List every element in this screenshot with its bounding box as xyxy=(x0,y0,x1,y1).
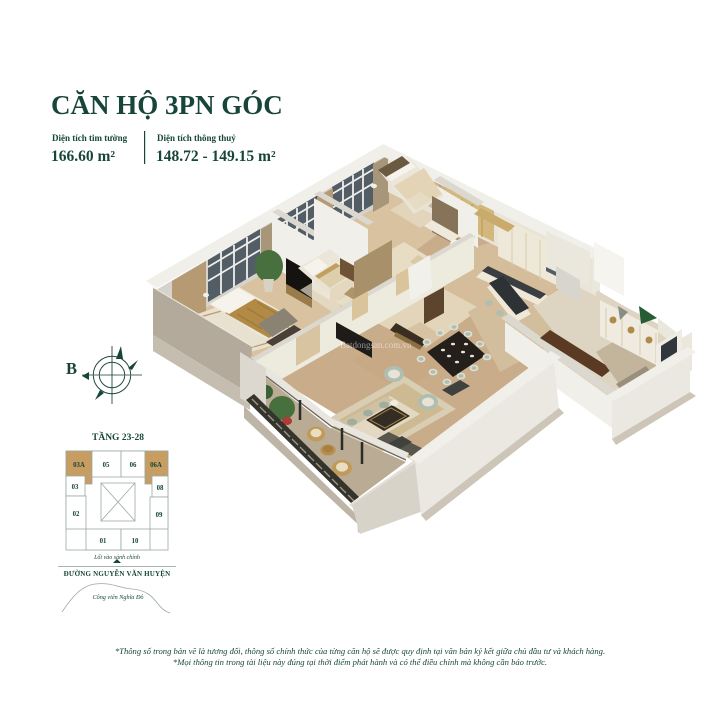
svg-text:06: 06 xyxy=(130,462,137,469)
svg-text:08: 08 xyxy=(157,485,164,492)
svg-text:10: 10 xyxy=(132,538,139,545)
svg-text:Diện tích tim tường: Diện tích tim tường xyxy=(52,133,128,143)
svg-text:*Thông số trong bản vẽ là tươn: *Thông số trong bản vẽ là tương đối, thô… xyxy=(115,646,605,656)
svg-text:B: B xyxy=(66,359,77,378)
svg-text:Công viên Nghĩa Đô: Công viên Nghĩa Đô xyxy=(92,594,143,601)
svg-text:166.60 m²: 166.60 m² xyxy=(51,148,115,165)
svg-text:03: 03 xyxy=(72,484,79,491)
svg-text:03A: 03A xyxy=(73,462,85,469)
svg-text:01: 01 xyxy=(100,538,107,545)
svg-text:ĐƯỜNG NGUYỄN VĂN HUYỆN: ĐƯỜNG NGUYỄN VĂN HUYỆN xyxy=(64,570,171,578)
svg-text:02: 02 xyxy=(73,511,80,518)
svg-text:Diện tích thông thuỷ: Diện tích thông thuỷ xyxy=(157,133,236,143)
svg-text:CĂN HỘ 3PN GÓC: CĂN HỘ 3PN GÓC xyxy=(51,90,283,120)
svg-text:09: 09 xyxy=(156,512,163,519)
svg-text:05: 05 xyxy=(103,462,110,469)
svg-text:*Mọi thông tin trong tài liệu: *Mọi thông tin trong tài liệu này đúng t… xyxy=(173,657,547,667)
svg-text:06A: 06A xyxy=(150,462,162,469)
svg-text:148.72 - 149.15 m²: 148.72 - 149.15 m² xyxy=(156,148,276,165)
svg-text:Batdongsan.com.vn: Batdongsan.com.vn xyxy=(340,340,412,350)
